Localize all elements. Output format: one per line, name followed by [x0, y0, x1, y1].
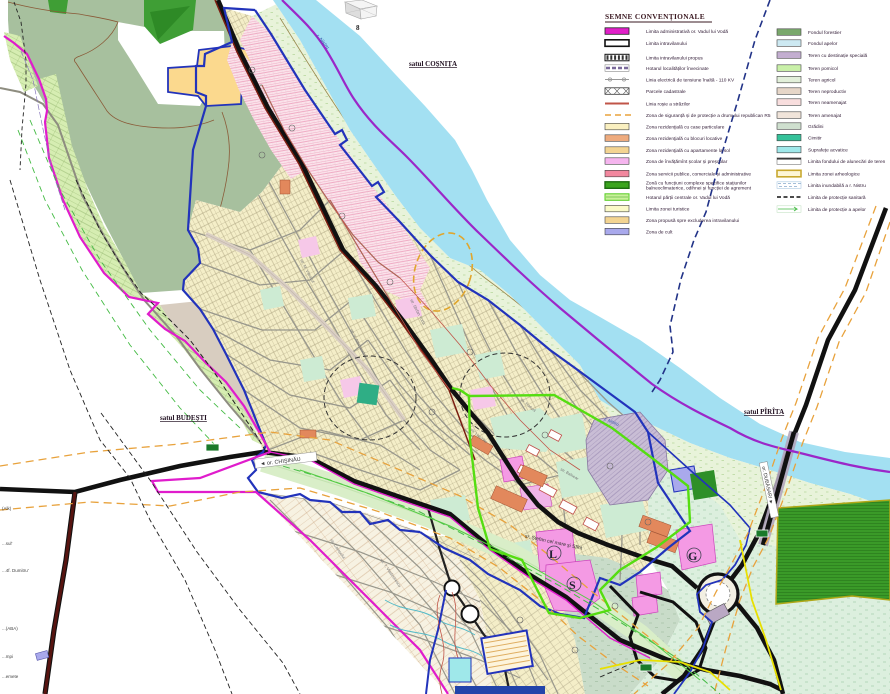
svg-text:Suprafețe acvatice: Suprafețe acvatice: [808, 147, 848, 153]
svg-text:...(ABA): ...(ABA): [2, 626, 18, 631]
svg-text:8: 8: [356, 24, 360, 32]
svg-text:Fondul forestier: Fondul forestier: [808, 30, 842, 36]
svg-text:(Alk): (Alk): [2, 506, 12, 511]
svg-text:Hotarul părții centrale or. Va: Hotarul părții centrale or. Vadul lui Vo…: [646, 195, 730, 201]
svg-text:Limita intravilanului: Limita intravilanului: [646, 41, 687, 47]
svg-text:Zona rezidenţială cu case par: Zona rezidenţială cu case particulare: [646, 124, 725, 130]
svg-text:...emete: ...emete: [2, 674, 19, 679]
svg-text:Limita zonei arheologice: Limita zonei arheologice: [808, 171, 860, 177]
svg-text:Zona rezidenţială cu blocuri: Zona rezidenţială cu blocuri locative: [646, 136, 723, 142]
svg-text:satul COŞNIŢA: satul COŞNIŢA: [409, 60, 457, 68]
svg-text:Linia roșie a străzilor: Linia roșie a străzilor: [646, 101, 690, 107]
svg-text:Limita de protecție sanitară: Limita de protecție sanitară: [808, 195, 866, 201]
svg-text:Grădini: Grădini: [808, 124, 823, 130]
svg-text:Teren cu destinație specială: Teren cu destinație specială: [808, 53, 868, 59]
svg-text:Parcele cadastrale: Parcele cadastrale: [646, 89, 686, 95]
svg-text:Limita zonei turistice: Limita zonei turistice: [646, 206, 690, 212]
svg-text:SEMNE CONVENȚIONALE: SEMNE CONVENȚIONALE: [605, 12, 705, 22]
svg-text:...mpi: ...mpi: [2, 654, 13, 659]
svg-text:Zona de învățămînt școlar și p: Zona de învățămînt școlar și preșcolar: [646, 159, 728, 165]
svg-text:Zona propusă spre excluderea i: Zona propusă spre excluderea intravilanu…: [646, 218, 739, 224]
svg-text:Cimitir: Cimitir: [808, 135, 822, 141]
svg-text:Teren amenajat: Teren amenajat: [808, 113, 842, 119]
svg-text:...sul': ...sul': [2, 541, 13, 546]
svg-text:Limita de protecție a apelor: Limita de protecție a apelor: [808, 207, 866, 213]
svg-text:Teren agricol: Teren agricol: [808, 77, 835, 83]
svg-text:Fondul apelor: Fondul apelor: [808, 41, 838, 47]
svg-text:Zona de cult: Zona de cult: [646, 229, 673, 235]
svg-text:Limita intravilanului propus: Limita intravilanului propus: [646, 55, 703, 61]
svg-text:Zona servicii publice, comerci: Zona servicii publice, comerciale și adm…: [646, 171, 751, 177]
svg-text:Zona de siguranță și de protec: Zona de siguranță și de protecție a drum…: [646, 113, 771, 119]
svg-text:Zona rezidenţială cu apartame: Zona rezidenţială cu apartamente la sol: [646, 148, 730, 154]
svg-text:Teren neamenajat: Teren neamenajat: [808, 100, 847, 106]
svg-text:Zonă cu funcțiuni complexe spe: Zonă cu funcțiuni complexe specifice sta…: [646, 181, 747, 187]
svg-text:Hotarul localităților învecina: Hotarul localităților învecinate: [646, 66, 709, 72]
svg-text:G: G: [688, 549, 697, 563]
svg-text:balneoclimaterice, odihnei și: balneoclimaterice, odihnei și funcției d…: [646, 186, 752, 192]
svg-text:Teren neproductiv: Teren neproductiv: [808, 89, 847, 95]
svg-text:Teren pomicol: Teren pomicol: [808, 66, 838, 72]
svg-text:satul PÎRÎTA: satul PÎRÎTA: [744, 408, 784, 416]
svg-text:Limita inundabilă a r. Nistru: Limita inundabilă a r. Nistru: [808, 183, 866, 189]
svg-text:Limita fondului de alunecări d: Limita fondului de alunecări de teren: [808, 159, 886, 165]
svg-text:Linia electrică de tensiune în: Linia electrică de tensiune înaltă - 110…: [646, 77, 735, 83]
svg-text:satul BUDEŞTI: satul BUDEŞTI: [160, 414, 207, 422]
svg-text:...4f. Dumitru': ...4f. Dumitru': [2, 568, 29, 573]
svg-text:Limita administrativă or. Vadu: Limita administrativă or. Vadul lui Vodă: [646, 29, 728, 35]
